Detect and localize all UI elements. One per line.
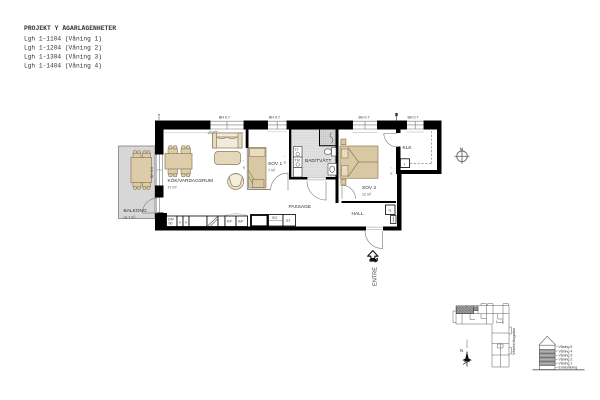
svg-text:N: N [460,147,463,152]
svg-text:BH 0.7: BH 0.7 [219,116,230,120]
svg-text:›: › [391,166,392,170]
svg-text:12 m²: 12 m² [362,193,372,197]
svg-text:PROJEKT Y ÄGARLÄGENHETER: PROJEKT Y ÄGARLÄGENHETER [24,24,116,32]
svg-text:HALL: HALL [352,211,364,217]
svg-text:SOV 2: SOV 2 [362,185,376,191]
svg-text:BAD/TVÄTT: BAD/TVÄTT [305,157,331,164]
svg-text:N: N [460,348,463,353]
svg-text:Västerviksgatan: Västerviksgatan [512,328,516,355]
svg-text:7 m²: 7 m² [268,169,276,173]
svg-text:E: E [391,172,393,176]
svg-text:Lgh 1-1104 (Våning 1): Lgh 1-1104 (Våning 1) [24,36,102,43]
svg-text:ST: ST [286,219,291,223]
svg-text:TM: TM [295,159,300,163]
svg-text:G: G [389,209,392,213]
svg-text:KÖK/VARDAGSRUM: KÖK/VARDAGSRUM [168,177,214,184]
svg-text:Lgh 1-1204 (Våning 2): Lgh 1-1204 (Våning 2) [24,45,102,52]
svg-text:BH 0.7: BH 0.7 [408,116,419,120]
svg-text:SOV 1: SOV 1 [268,161,282,167]
svg-text:60: 60 [169,222,173,226]
svg-text:›: › [284,154,285,158]
svg-text:L: L [404,162,406,166]
svg-text:E: E [243,166,245,170]
svg-text:K/F: K/F [227,220,233,224]
svg-text:E: E [284,161,286,165]
svg-text:ENTRÉ: ENTRÉ [372,267,379,286]
svg-text:Lgh 1-1404 (Våning 4): Lgh 1-1404 (Våning 4) [24,63,102,70]
svg-text:BH 0.6: BH 0.6 [150,167,154,178]
svg-text:17 m²: 17 m² [168,186,178,190]
svg-text:KLK: KLK [403,145,413,151]
svg-text:K/F: K/F [238,220,244,224]
svg-text:ca 7 m²: ca 7 m² [124,216,137,220]
svg-text:Entrévåning: Entrévåning [559,366,578,370]
svg-text:BH 0.7: BH 0.7 [269,116,280,120]
svg-text:›: › [243,159,244,163]
svg-text:SG: SG [272,216,277,220]
svg-text:Lgh 1-1304 (Våning 3): Lgh 1-1304 (Våning 3) [24,54,102,61]
svg-text:BH 0.7: BH 0.7 [359,116,370,120]
svg-text:PASSAGE: PASSAGE [289,204,312,210]
